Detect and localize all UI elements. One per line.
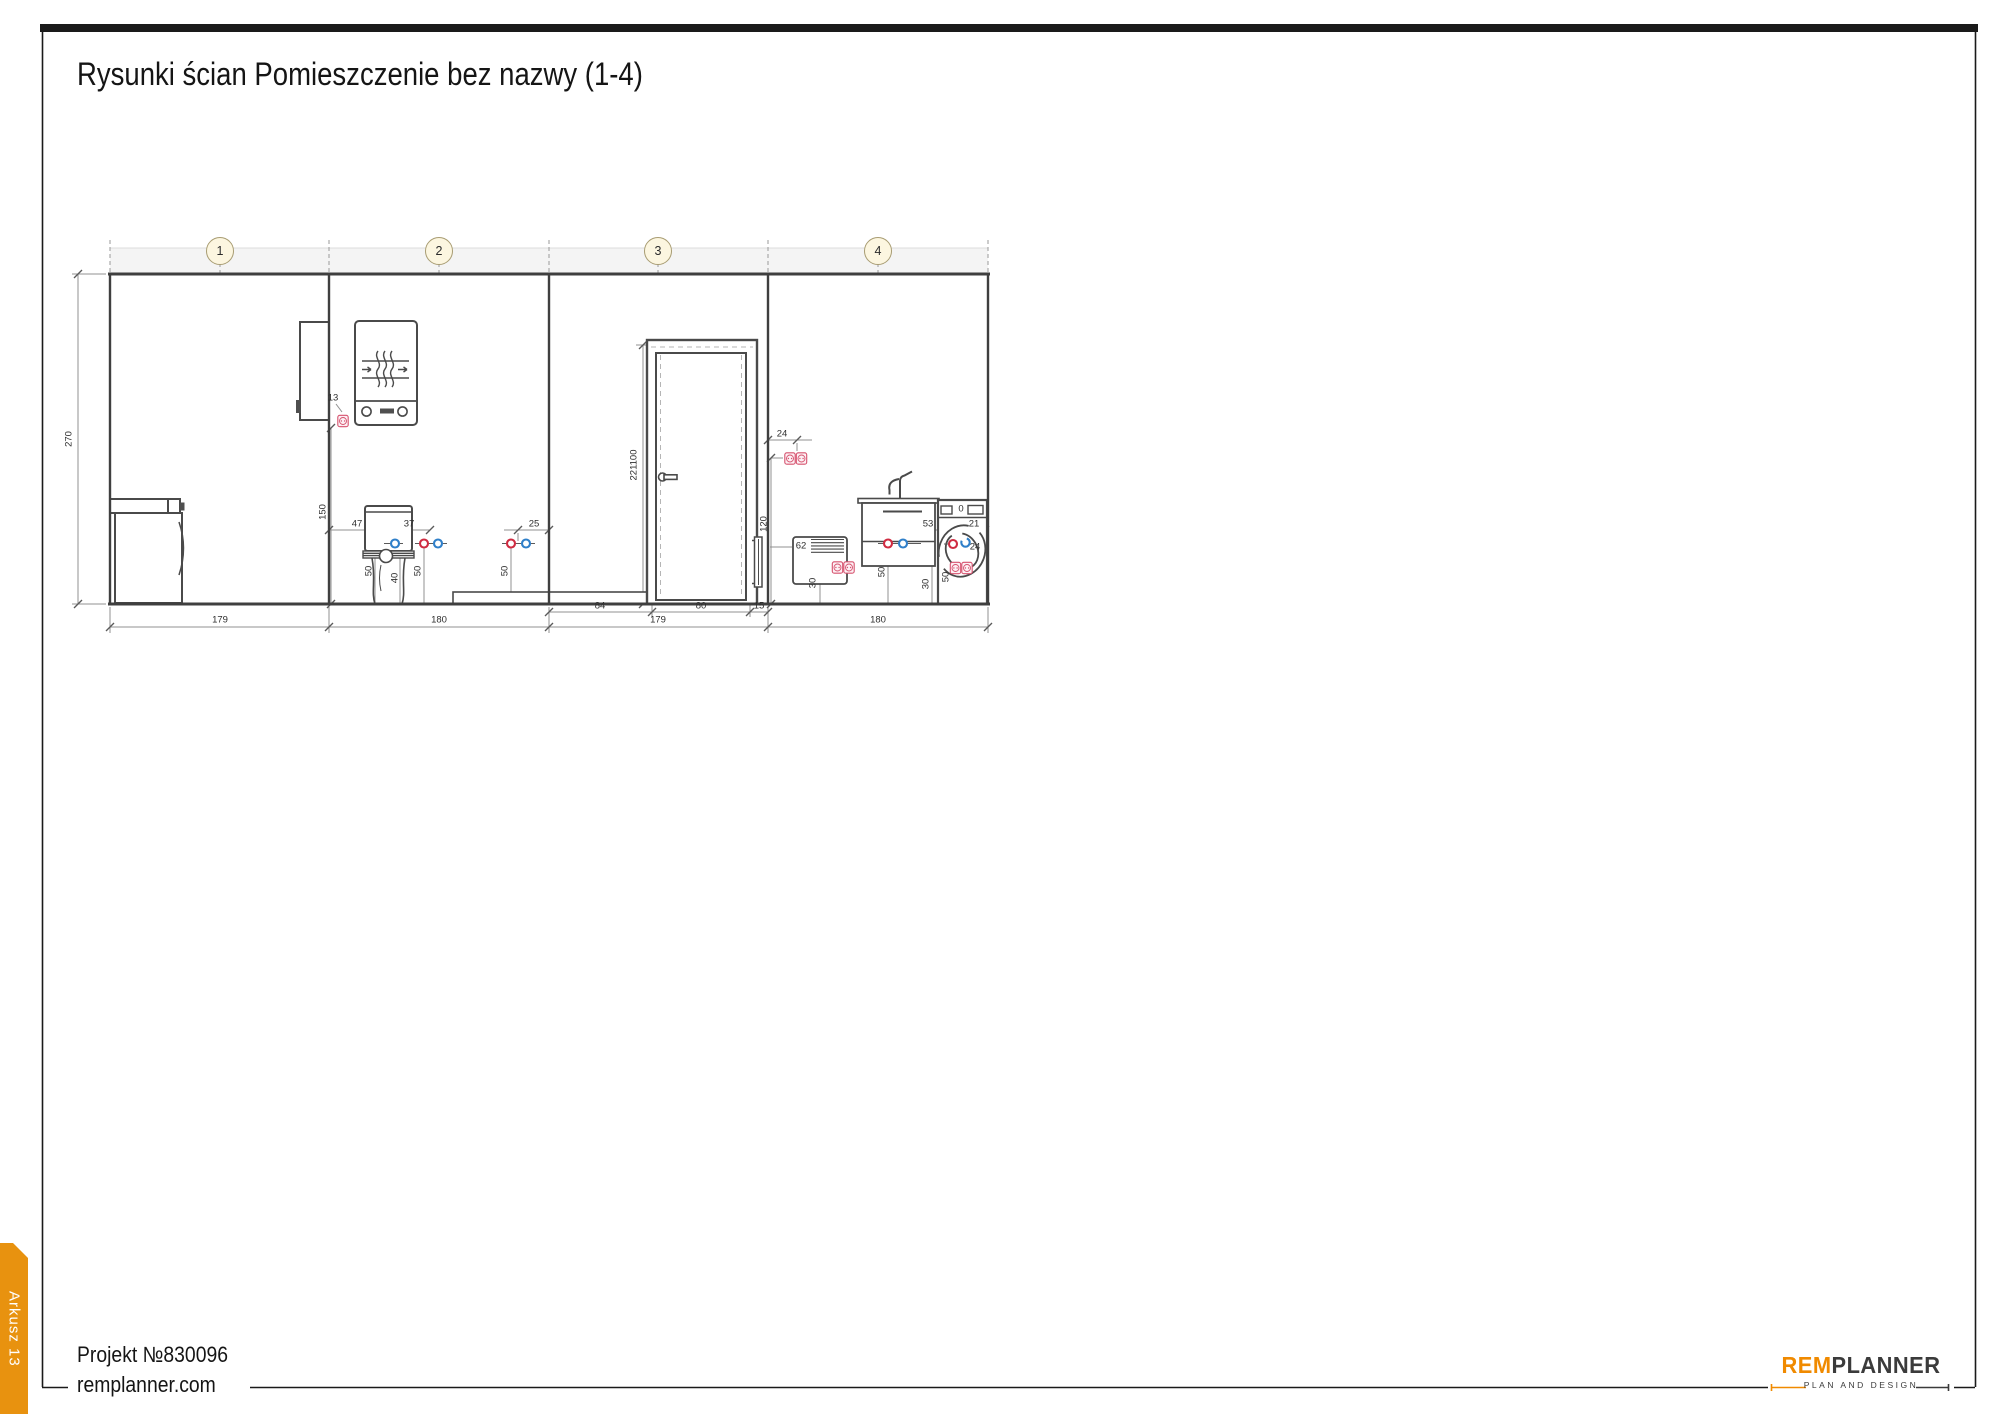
dim-convector-socket-height: 30 <box>808 578 818 589</box>
boiler-side-view <box>296 322 329 420</box>
logo-brand: REMPLANNER <box>1775 1352 1948 1379</box>
dim-wm-gap-height: 30 <box>921 579 931 590</box>
wall1-appliance <box>110 499 185 603</box>
dim-door-height: 221100 <box>629 450 639 481</box>
drain-point <box>961 538 969 546</box>
hot-water-point <box>420 540 428 548</box>
socket-icon <box>962 562 972 573</box>
door <box>647 340 757 604</box>
dim-wall3-width: 179 <box>650 615 666 625</box>
dim-w4-socket-height: 120 <box>759 516 769 532</box>
dim-toilet-point-height-right: 50 <box>413 566 423 577</box>
dim-door-offset-left: 84 <box>595 601 606 611</box>
ceiling-band <box>110 240 988 274</box>
socket-icon <box>785 453 795 464</box>
cold-water-point <box>899 540 907 548</box>
dim-door-offset-right: 15 <box>754 601 765 611</box>
dim-toilet-offset-left: 47 <box>352 519 363 529</box>
room-outline <box>108 274 990 604</box>
dim-toilet-offset-right: 37 <box>404 519 415 529</box>
dim-boiler-socket-height: 150 <box>318 504 328 520</box>
dim-wall1-width: 179 <box>212 615 228 625</box>
sheet-page: Rysunki ścian Pomieszczenie bez nazwy (1… <box>0 0 2000 1414</box>
dim-sink-point-height: 50 <box>877 567 887 578</box>
boiler-front <box>355 321 417 425</box>
door-handle <box>659 473 678 481</box>
socket-icon <box>796 453 806 464</box>
hot-water-point <box>884 540 892 548</box>
cold-water-point <box>522 540 530 548</box>
dim-sink-points: 53 <box>923 519 934 529</box>
wall-marker-2: 2 <box>425 237 453 265</box>
socket-icon <box>832 562 842 573</box>
wall-marker-4: 4 <box>864 237 892 265</box>
frame-top-bar <box>40 24 1978 32</box>
logo-tagline: PLAN AND DESIGN <box>1770 1380 1952 1390</box>
socket-icon <box>338 415 348 426</box>
dim-w4-socket-offset: 24 <box>777 429 788 439</box>
dim-wm-point-offset: 24 <box>970 542 981 552</box>
sheet-tab-label: Arkusz 13 <box>6 1291 23 1367</box>
dim-toilet-point-height-left: 50 <box>364 566 374 577</box>
dim-toilet-drain-height: 40 <box>390 573 400 584</box>
socket-icon <box>950 562 960 573</box>
washing-machine <box>931 500 992 604</box>
dim-door-width: 80 <box>696 601 707 611</box>
sheet-tab: Arkusz 13 <box>0 1243 28 1414</box>
dim-shower-point-height: 50 <box>500 566 510 577</box>
shower-platform <box>453 592 648 604</box>
dim-wall2-width: 180 <box>431 615 447 625</box>
sheet-frame <box>40 24 1978 1388</box>
dimension-ticks <box>74 270 992 631</box>
dim-shower-points-offset: 25 <box>529 519 540 529</box>
wall-marker-1: 1 <box>206 237 234 265</box>
cold-water-point <box>391 540 399 548</box>
dim-wm-point-height: 50 <box>941 572 951 583</box>
dim-ceiling-height: 270 <box>64 431 74 447</box>
website-label: remplanner.com <box>77 1372 216 1398</box>
cold-water-point <box>434 540 442 548</box>
wm-display <box>968 506 983 515</box>
hot-water-point <box>949 540 957 548</box>
wm-detergent-drawer <box>941 506 952 514</box>
dim-wm-door: 21 <box>969 519 980 529</box>
dim-boiler-socket-offset: 13 <box>328 393 339 403</box>
project-number: Projekt №830096 <box>77 1342 228 1368</box>
drawing-linework <box>0 0 2000 1414</box>
hot-water-point <box>507 540 515 548</box>
dimension-lines <box>72 274 988 633</box>
dim-wall4-width: 180 <box>870 615 886 625</box>
socket-icon <box>844 562 854 573</box>
page-title: Rysunki ścian Pomieszczenie bez nazwy (1… <box>77 56 643 93</box>
label-convector-ref: 62 <box>796 541 807 551</box>
wall-marker-3: 3 <box>644 237 672 265</box>
remplanner-logo: REMPLANNER PLAN AND DESIGN <box>1770 1352 1952 1390</box>
wm-knob-label: 0 <box>958 504 963 514</box>
faucet <box>889 472 912 499</box>
